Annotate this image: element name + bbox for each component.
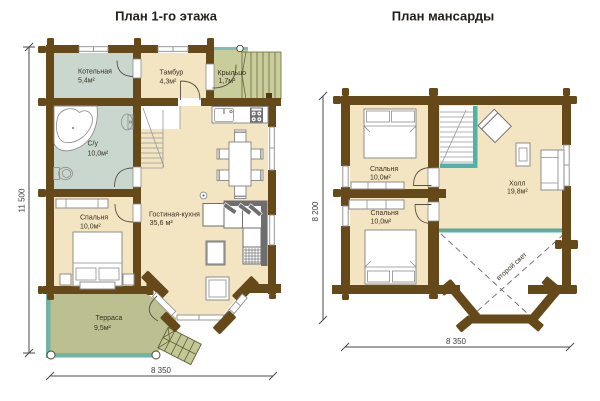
svg-text:Холл: Холл [509, 181, 526, 188]
svg-text:Крыльцо: Крыльцо [218, 70, 247, 77]
svg-text:5,4м²: 5,4м² [78, 78, 96, 85]
svg-text:8 350: 8 350 [446, 337, 467, 346]
svg-text:11 500: 11 500 [18, 188, 27, 212]
svg-text:План мансарды: План мансарды [392, 9, 494, 24]
svg-text:9,5м²: 9,5м² [94, 325, 112, 332]
svg-text:Котельная: Котельная [78, 69, 112, 76]
svg-text:4,3м²: 4,3м² [160, 79, 178, 86]
svg-text:С/у: С/у [88, 141, 99, 148]
svg-text:10,0м²: 10,0м² [370, 175, 391, 182]
svg-text:10,0м²: 10,0м² [80, 224, 101, 231]
svg-text:35,6 м²: 35,6 м² [150, 218, 174, 227]
svg-text:Спальня: Спальня [370, 166, 398, 173]
svg-text:8 200: 8 200 [311, 201, 320, 222]
svg-text:Терраса: Терраса [96, 315, 123, 322]
svg-text:8 350: 8 350 [151, 366, 172, 375]
svg-text:Спальня: Спальня [80, 215, 108, 222]
svg-text:План 1-го этажа: План 1-го этажа [115, 9, 218, 24]
svg-text:19,8м²: 19,8м² [507, 189, 528, 196]
svg-text:10,0м²: 10,0м² [88, 151, 109, 158]
svg-text:Тамбур: Тамбур [160, 69, 184, 77]
svg-text:Спальня: Спальня [371, 210, 399, 217]
svg-text:1,7м²: 1,7м² [219, 78, 237, 85]
svg-text:10,0м²: 10,0м² [371, 219, 392, 226]
